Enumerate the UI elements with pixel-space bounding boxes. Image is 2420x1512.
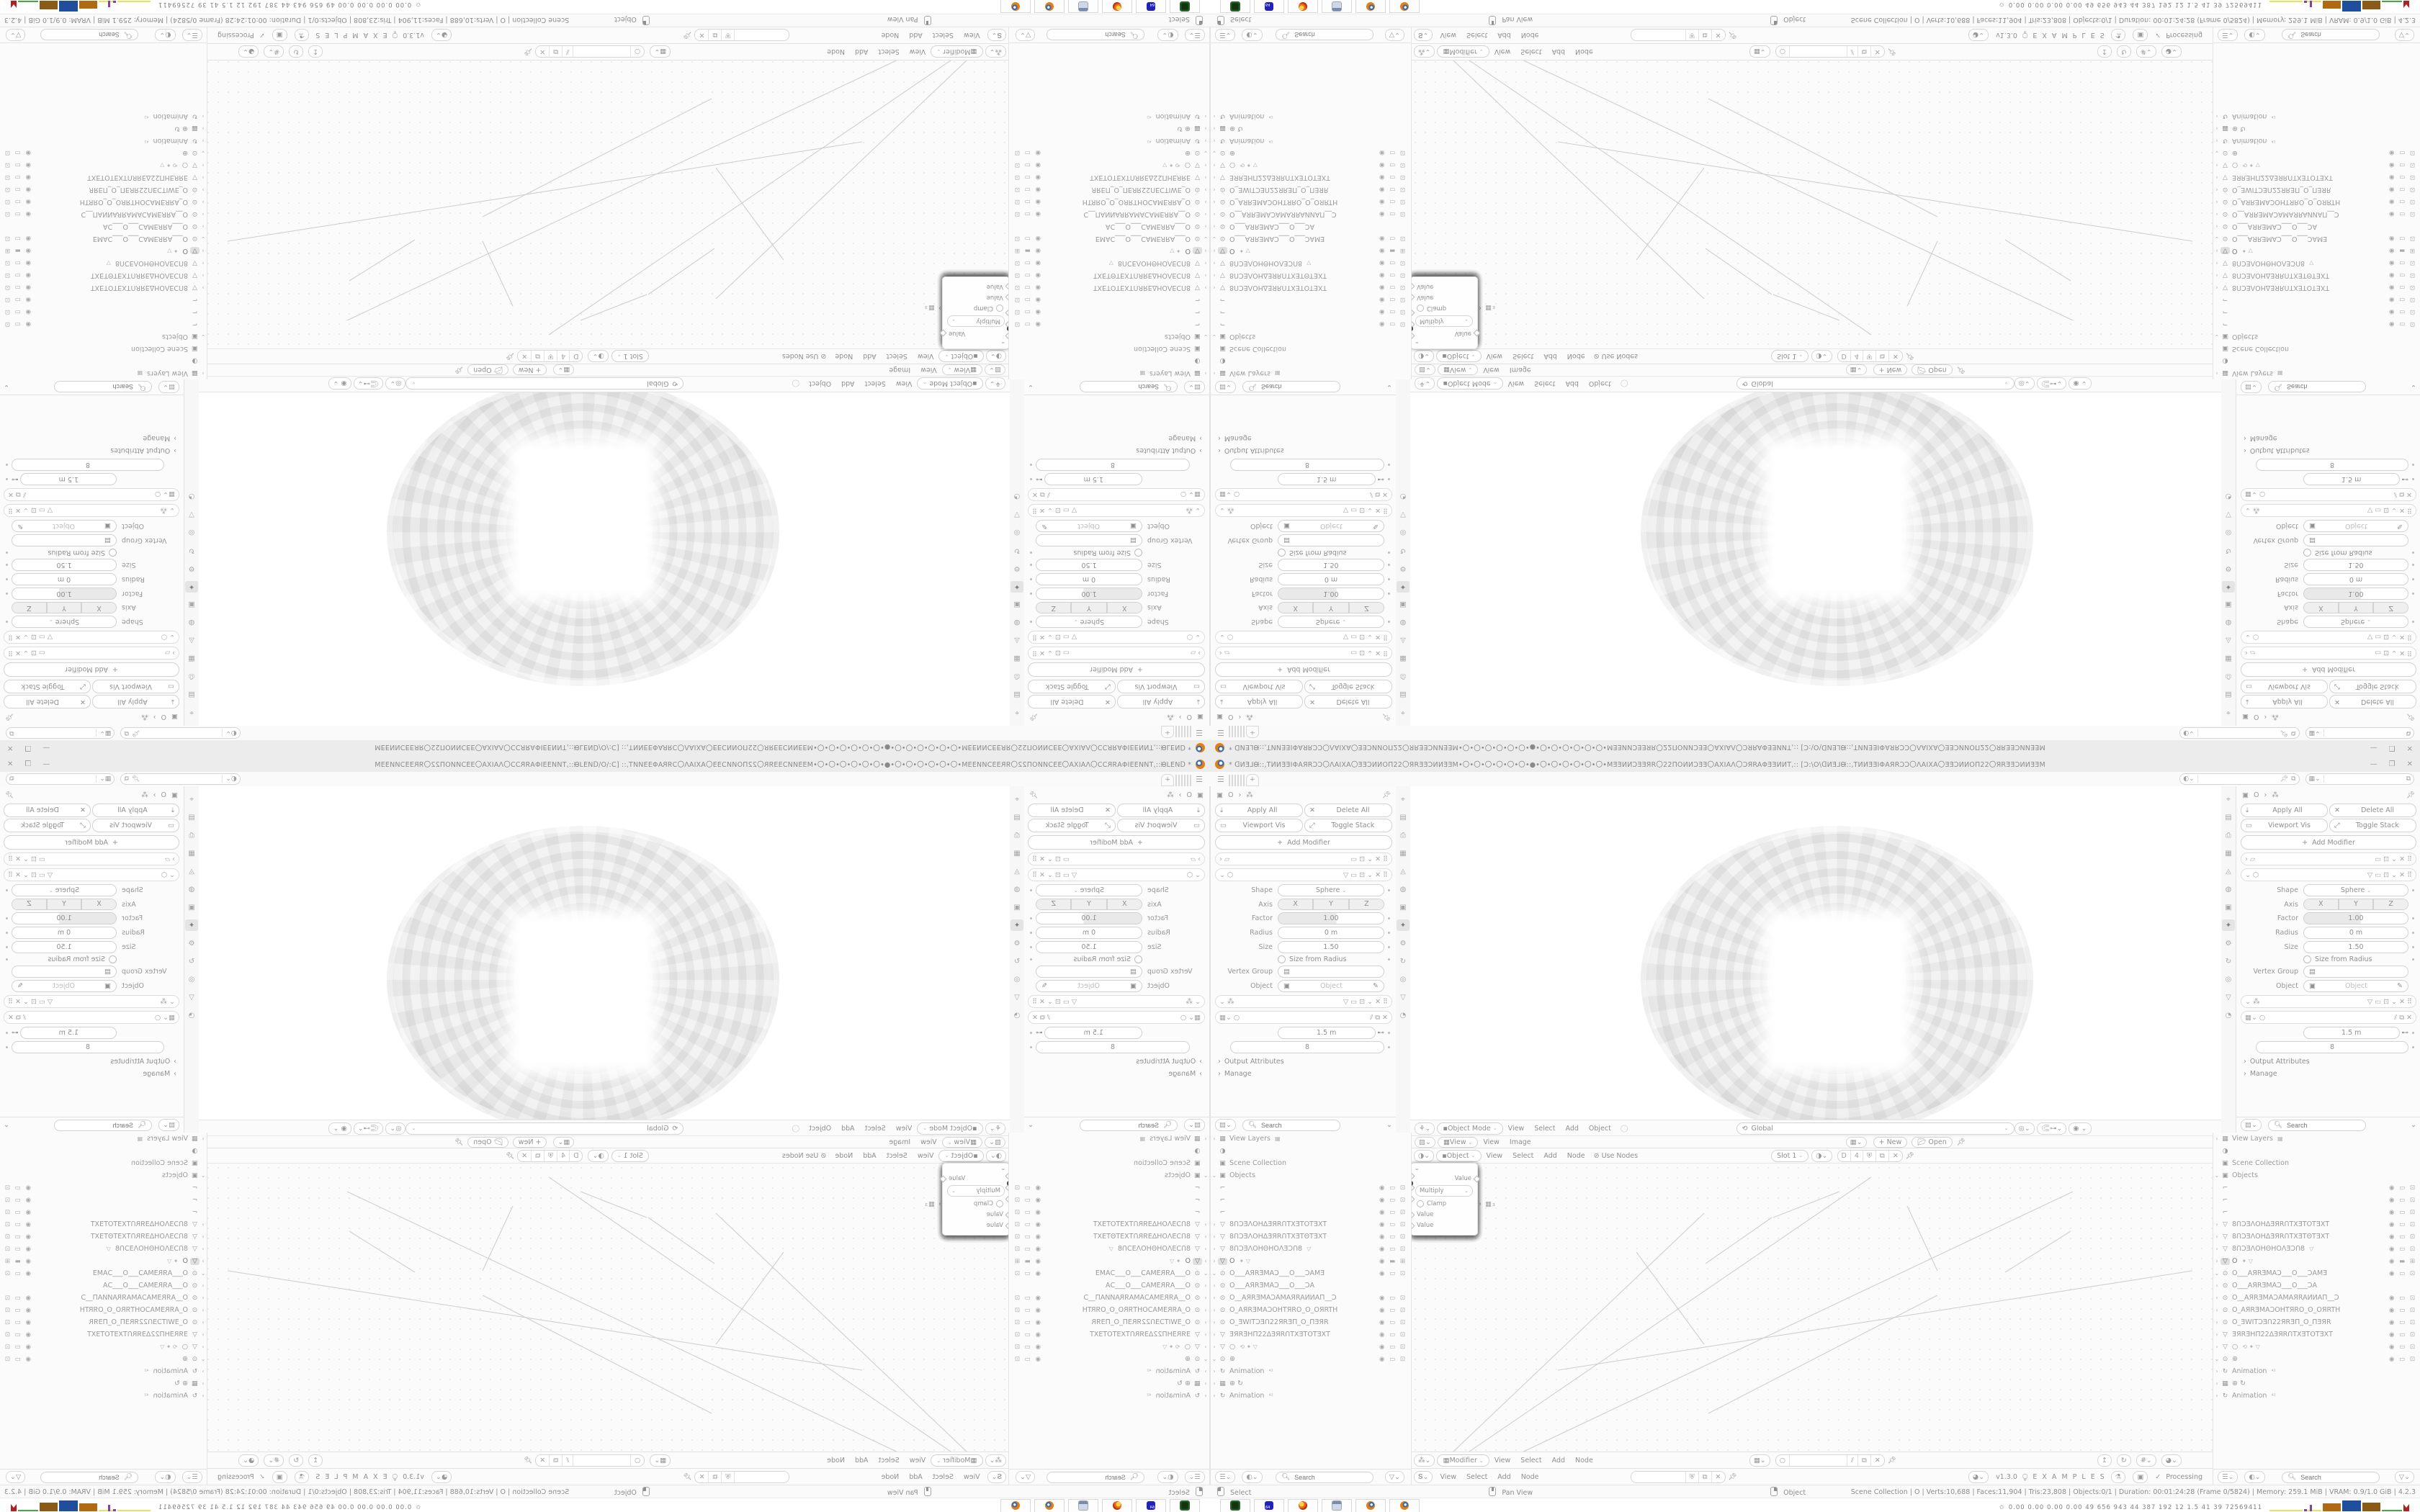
object-name[interactable]: 8ՈƆƎΛΟΗΔƎЯRՈΤΧƎΤΟΤƎΧΤ <box>1229 284 1327 292</box>
object-name[interactable]: O <box>183 247 188 255</box>
visibility-icons[interactable]: ◉ ▭ ⊡ <box>2389 260 2416 267</box>
outliner-row[interactable]: › ⊙ O_ƎWITƆƎՈ22ЯRƎΠ_O_ΠƎЯR ◉ ▭ ⊡ <box>1009 1316 1209 1328</box>
drag-handle[interactable]: ⠿ <box>1032 998 1037 1006</box>
expand-icon[interactable]: ⌄ <box>200 150 207 156</box>
menu-add[interactable]: Add <box>1552 1457 1565 1464</box>
outliner-row[interactable]: ◑ <box>1211 1145 1411 1157</box>
menu-select[interactable]: Select <box>878 48 899 55</box>
apply-all-button[interactable]: ⤓Apply All <box>1215 695 1303 708</box>
expand-icon[interactable]: › <box>1211 1258 1218 1264</box>
outliner-row[interactable]: › ▽ 8ՈƆƎΛΟΗΔƎЯRՈΤΧƎΤΟΤƎΧΤ ◉ ▭ ⊡ <box>0 1218 207 1230</box>
pin-icon[interactable]: 📌︎ <box>1029 791 1038 799</box>
expand-icon[interactable]: › <box>200 1258 207 1264</box>
node-tree-selector[interactable]: ▦⌄○ ⫽ ⧉✕ <box>1215 488 1392 501</box>
expand-icon[interactable]: ⌄ <box>1202 235 1209 242</box>
toggle-stack-button[interactable]: ⤢Toggle Stack <box>2329 680 2416 693</box>
expand-icon[interactable]: › <box>1202 211 1209 217</box>
drag-handle[interactable]: ⠿ <box>8 871 13 879</box>
screen-icon[interactable]: ▭ <box>2375 855 2381 863</box>
visibility-icons[interactable]: ◉ ▭ ⊡ <box>1013 1246 1041 1253</box>
viewport-vis-button[interactable]: ▭Viewport Vis <box>2241 819 2328 832</box>
material-name[interactable]: Ⅾ <box>570 1151 582 1161</box>
delete-all-button[interactable]: ✕Delete All <box>1304 695 1392 708</box>
fake-user-icon[interactable]: ⫽ <box>563 46 573 57</box>
axis-toggle[interactable]: XYZ <box>1278 899 1384 910</box>
workspace-tab[interactable] <box>1232 726 1233 737</box>
filter-object-button[interactable]: ◐⌄ <box>155 1471 175 1483</box>
size-from-radius-checkbox[interactable] <box>1278 549 1286 557</box>
taskbar-app-button[interactable] <box>1000 0 1031 14</box>
outliner-row[interactable]: › ⊙ O___AЯRƎMAƆ___O___ƆA <box>2213 1279 2420 1292</box>
outliner-row[interactable]: › ⊙ O_ƎWITƆƎՈ22ЯRƎΠ_O_ΠƎЯR ◉ ▭ ⊡ <box>1211 1316 1411 1328</box>
image-browse-button[interactable]: ▦⌄ <box>553 1137 574 1148</box>
menu-add[interactable]: Add <box>1543 353 1556 361</box>
object-name[interactable]: Animation <box>153 1367 188 1375</box>
overlay-button[interactable]: ◕⌄ <box>238 45 259 58</box>
outliner-row[interactable]: ◑ <box>1009 355 1209 367</box>
filter-icon[interactable]: ▽ <box>1343 998 1348 1006</box>
editor-type-button[interactable]: ⁂⌄ <box>985 1454 1006 1467</box>
object-name[interactable]: 8ՈƆƎΛΟΗΘΗΟΛƎƆՈ8 <box>1229 1245 1302 1253</box>
properties-tab[interactable]: ◬ <box>1397 635 1410 647</box>
expand-icon[interactable]: › <box>1202 1282 1209 1289</box>
expand-icon[interactable]: ⌄ <box>1202 150 1209 156</box>
editor-type-button[interactable]: ▤⌄ <box>1215 1119 1236 1131</box>
editor-type-button[interactable]: ⁂⌄ <box>1414 45 1435 58</box>
object-name[interactable]: ○ <box>1229 1343 1235 1351</box>
properties-search[interactable]: 🔍︎ <box>54 382 152 393</box>
outliner-row[interactable]: › ↻ Animation ⁴² <box>1211 1390 1411 1402</box>
material-id-field[interactable]: Ⅾ 4 ⛨ ⧉ ✕ <box>517 351 583 363</box>
taskbar-app-button[interactable] <box>1102 0 1132 14</box>
image-view-dropdown[interactable]: ▦ View⌄ <box>1438 364 1478 375</box>
menu-image[interactable]: Image <box>889 366 910 374</box>
visibility-icons[interactable]: ◉ ▭ ⊡ <box>4 321 31 328</box>
editor-type-button[interactable]: ⚘⌄ <box>985 378 1005 390</box>
material-name[interactable]: Ⅾ <box>1838 1151 1850 1161</box>
editor-type-button[interactable]: ▤⌄ <box>158 381 179 393</box>
manage-section[interactable]: › Manage <box>1218 1070 1389 1078</box>
outliner-row[interactable]: ⌐ ◉ ▭ ⊡ <box>0 306 207 318</box>
outliner-row[interactable]: › ⊙ O_AЯRƎMAƆOHTЯRO_O_OЯRTH ◉ ▭ ⊡ <box>0 196 207 208</box>
object-name[interactable]: View Layers <box>147 369 188 377</box>
object-field[interactable]: ▣ Object✎ <box>1278 980 1384 992</box>
drag-handle[interactable]: ⠿ <box>8 634 13 642</box>
expand-icon[interactable]: › <box>2213 272 2220 279</box>
properties-tab[interactable]: ⌖ <box>1397 707 1410 719</box>
outliner-row[interactable]: › ▦ View Layers ▦ <box>1009 367 1209 379</box>
properties-tab[interactable]: ✦ <box>185 919 198 931</box>
object-name[interactable]: O_ƎWITƆƎՈ22ЯRƎΠ_O_ΠƎЯR <box>1091 186 1191 194</box>
editor-type-button[interactable]: 𝐒⌄ <box>1414 29 1433 41</box>
modifier-slot-cast[interactable]: ⌄⬡ ▽ ▭⊡ ⌄✕⠿ <box>4 631 179 644</box>
remove-icon[interactable]: ✕ <box>1039 855 1045 863</box>
visibility-icons[interactable]: ◉ ▭ ⊡ <box>1379 321 1407 328</box>
expand-icon[interactable]: › <box>200 1319 207 1326</box>
menu-node[interactable]: Node <box>1575 1457 1593 1464</box>
modifier-slot-collapsed[interactable]: ›▱ ▭⊡ ⌄✕⠿ <box>1215 647 1392 660</box>
editor-type-button[interactable]: ◑⌄ <box>986 351 1006 363</box>
vertex-group-field[interactable]: ▤ <box>2303 534 2408 546</box>
object-name[interactable]: O__AЯRƎMAƆAMAЯRAͶͶAΠ__Ɔ <box>2232 210 2339 218</box>
gn-scale-field[interactable]: 1.5 m <box>2303 1027 2400 1039</box>
visibility-icons[interactable]: ◉ ▭ ⊡ <box>2389 1319 2416 1326</box>
outliner-row[interactable]: › ⊙ O__AЯRƎMAƆAMAЯRAͶͶAΠ__Ɔ ◉ ▭ ⊡ <box>1009 208 1209 220</box>
outliner-row[interactable]: › ⊙ O__AЯRƎMAƆAMAЯRAͶͶAΠ__Ɔ ◉ ▭ ⊡ <box>1009 1292 1209 1304</box>
screen-icon[interactable]: ▭ <box>2375 998 2381 1006</box>
outliner-row[interactable]: ▣ Scene Collection <box>0 343 207 355</box>
expand-icon[interactable]: › <box>1211 125 1218 132</box>
options-chevron-icon[interactable]: ⌄ <box>4 383 9 391</box>
orientation-dropdown[interactable]: ⟲ Global⌄ <box>1736 378 2015 390</box>
workspace-tab[interactable] <box>1237 726 1239 737</box>
object-field[interactable]: ▣ Object✎ <box>1278 520 1384 532</box>
object-name[interactable]: 8ՈƆƎΛΟΗΘΗΟΛƎƆՈ8 <box>1118 259 1191 267</box>
menu-node[interactable]: Node <box>1575 48 1593 55</box>
filter-icon[interactable]: ▽ <box>2367 871 2372 879</box>
menu-view[interactable]: View <box>920 366 937 374</box>
outliner-row[interactable]: ⌐ ◉ ▭ ⊡ <box>1211 1194 1411 1206</box>
object-name[interactable]: O__AЯRƎMAƆAMAЯRAͶͶAΠ__Ɔ <box>81 1294 188 1302</box>
properties-tab[interactable]: ⚙ <box>1397 937 1410 949</box>
menu-node[interactable]: Node <box>835 1152 853 1160</box>
search-input[interactable] <box>1260 1121 1313 1130</box>
workspace-tab[interactable] <box>1234 775 1236 786</box>
vertex-group-field[interactable]: ▤ <box>12 534 117 546</box>
add-modifier-button[interactable]: + Add Modifier <box>2241 662 2416 677</box>
properties-tab[interactable]: ⎙ <box>1010 671 1023 683</box>
expand-icon[interactable]: ⌄ <box>2213 1172 2220 1179</box>
outliner-row[interactable]: ⌄ ⊙ ⊕ ◉ ▭ ⊡ <box>1211 147 1411 159</box>
expand-icon[interactable]: › <box>1211 370 1218 377</box>
node-tree-selector[interactable]: ▦⌄○ ⫽ ⧉✕ <box>1215 1011 1392 1024</box>
gn-scale-field[interactable]: 1.5 m <box>21 1027 117 1039</box>
menu-select[interactable]: Select <box>1520 48 1541 55</box>
properties-tab[interactable]: ⌖ <box>1397 793 1410 805</box>
pin-icon[interactable]: 📌︎ <box>1888 1457 1896 1464</box>
outliner-row[interactable]: › ▽ 8ՈƆƎΛΟΗΔƎЯRՈΤΧƎΤΘΤƎΧΤ ◉ ▭ ⊡ <box>2213 269 2420 282</box>
properties-tab[interactable]: ▤ <box>185 811 198 823</box>
editor-type-button[interactable]: ⚘⌄ <box>1415 1122 1435 1135</box>
properties-tab[interactable]: ⚙ <box>1397 563 1410 575</box>
size-from-radius-checkbox[interactable] <box>1278 955 1286 963</box>
object-name[interactable]: O_ƎWITƆƎՈ22ЯRƎΠ_O_ΠƎЯR <box>1091 1318 1191 1326</box>
expand-icon[interactable]: › <box>1211 211 1218 217</box>
tree-browse-button[interactable]: ▦⌄ <box>650 1454 671 1467</box>
object-name[interactable]: O__AЯRƎMAƆAMAЯRAͶͶAΠ__Ɔ <box>1083 1294 1191 1302</box>
expand-icon[interactable]: › <box>200 1233 207 1240</box>
outliner-search[interactable]: 🔍︎ <box>40 30 138 41</box>
outliner-row[interactable]: › ▽ 8ՈƆƎΛΟΗΔƎЯRՈΤΧƎΤΟΤƎΧΤ ◉ ▭ ⊡ <box>1211 1218 1411 1230</box>
expand-icon[interactable]: › <box>2213 284 2220 291</box>
object-name[interactable]: Animation <box>1229 137 1264 145</box>
outliner-row[interactable]: ⌐ ◉ ▭ ⊡ <box>1211 1206 1411 1218</box>
outliner-row[interactable]: › ▽ 8ՈƆƎΛΟΗΔƎЯRՈΤΧƎΤΟΤƎΧΤ ◉ ▭ ⊡ <box>0 282 207 294</box>
slot-dropdown[interactable]: Slot 1⌄ <box>1771 1150 1809 1162</box>
scene-selector[interactable]: ◐⌄ 📌︎⧉ <box>120 773 240 785</box>
snap-button[interactable]: #⌄ <box>2136 1454 2156 1467</box>
properties-tab[interactable]: ▽ <box>2222 509 2235 521</box>
visibility-icons[interactable]: ◉ ▭ ⊡ <box>1013 174 1041 181</box>
outliner-search[interactable]: 🔍︎ <box>40 1472 138 1483</box>
object-name[interactable]: Objects <box>1165 1171 1191 1179</box>
properties-tab[interactable]: ◎ <box>1397 973 1410 985</box>
outliner-row[interactable]: › ↻ Animation ⁴² <box>0 1390 207 1402</box>
options-chevron-icon[interactable]: ⌄ <box>2411 383 2416 391</box>
outliner-row[interactable]: › ⊙ O__AЯRƎMAƆAMAЯRAͶͶAΠ__Ɔ ◉ ▭ ⊡ <box>2213 208 2420 220</box>
pin-icon[interactable]: 📌︎ <box>5 791 14 799</box>
camera-icon[interactable]: ⊡ <box>31 634 37 642</box>
object-name[interactable]: 8ՈƆƎΛΟΗΔƎЯRՈΤΧƎΤΟΤƎΧΤ <box>1229 1220 1327 1228</box>
expand-icon[interactable]: ⌄ <box>1202 1356 1209 1362</box>
remove-icon[interactable]: ✕ <box>2399 998 2405 1006</box>
visibility-icons[interactable]: ◉ ▭ ⊡ <box>2389 1295 2416 1302</box>
menu-hamburger-icon[interactable]: ☰ <box>1217 775 1224 784</box>
clamp-checkbox[interactable] <box>996 305 1003 312</box>
modifier-slot-geometry-nodes[interactable]: ⌄⁂ ▽ ▭⊡ ⌄✕⠿ <box>1215 504 1392 517</box>
gn-scale-field[interactable]: 1.5 m <box>1278 473 1376 485</box>
overlay-button[interactable]: ◕⌄ <box>431 1471 452 1483</box>
expand-icon[interactable]: › <box>200 125 207 132</box>
menu-object[interactable]: Object <box>809 1125 831 1133</box>
pin-icon[interactable]: 📌︎ <box>454 366 463 374</box>
outliner-row[interactable]: › ▽ 8ՈƆƎΛΟΗΘΗΟΛƎƆՈ8 ▽ ◉ ▭ ⊡ <box>0 1243 207 1255</box>
outliner-row[interactable]: › ⊙ O_AЯRƎMAƆOHTЯRO_O_OЯRTH ◉ ▭ ⊡ <box>2213 1304 2420 1316</box>
shape-dropdown[interactable]: Sphere⌄ <box>2303 884 2408 896</box>
expand-icon[interactable]: ⌄ <box>1211 1270 1218 1277</box>
minimize-button[interactable]: — <box>2370 760 2378 768</box>
screen-icon[interactable]: ▭ <box>1063 507 1070 515</box>
object-name[interactable]: O___AЯRƎMAƆ___O___ƆAMƎ <box>2232 235 2327 243</box>
tree-browse-button[interactable]: ▦⌄ <box>1749 45 1770 58</box>
eyedropper-icon[interactable]: ✎ <box>2397 522 2403 530</box>
factor-slider[interactable]: 1.00 <box>12 588 117 600</box>
visibility-icons[interactable]: ◉ ▬ ⊞ <box>2389 1258 2416 1265</box>
pin-icon[interactable]: 📌︎ <box>1382 791 1391 799</box>
math-node[interactable]: ⌄ Value Multiply⌄ Clamp Value Value <box>942 1163 1010 1236</box>
visibility-icons[interactable]: ◉ ▬ ⊞ <box>1013 1258 1041 1265</box>
examples-label[interactable]: E X A M P L E S <box>314 31 387 39</box>
camera-icon[interactable]: ⊡ <box>1359 871 1365 879</box>
axis-toggle[interactable]: XYZ <box>1278 602 1384 613</box>
object-name[interactable]: O___AЯRƎMAƆ___O___ƆAMƎ <box>2232 1269 2327 1277</box>
axis-toggle[interactable]: XYZ <box>2303 899 2408 910</box>
shader-editor[interactable]: ◑⌄ ▪ Object⌄ View Select Add Node ⊘ Use … <box>1410 1148 2213 1452</box>
filter-icon[interactable]: ▽ <box>1343 507 1348 515</box>
visibility-icons[interactable]: ◉ ▭ ⊡ <box>4 272 31 279</box>
filter-funnel-button[interactable]: ▽⌄ <box>6 29 25 41</box>
menu-node[interactable]: Node <box>1521 1473 1539 1481</box>
tree-id-field[interactable]: ⛨ ⧉ ✕ <box>1631 1471 1726 1483</box>
viewport-vis-button[interactable]: ▭Viewport Vis <box>1117 819 1205 832</box>
gn-scale-field[interactable]: 1.5 m <box>21 473 117 485</box>
properties-tab[interactable]: ▤ <box>2222 811 2235 823</box>
remove-icon[interactable]: ✕ <box>2399 649 2405 657</box>
camera-icon[interactable]: ⊡ <box>1359 507 1365 515</box>
vertex-group-field[interactable]: ▤ <box>1278 966 1384 978</box>
size-field[interactable]: 1.50 <box>1278 559 1384 571</box>
image-browse-button[interactable]: ▦⌄ <box>553 364 574 375</box>
add-workspace-button[interactable]: + <box>1161 774 1174 786</box>
gn-resolution-field[interactable]: 8 <box>2256 459 2408 471</box>
material-id-field[interactable]: Ⅾ 4 ⛨ ⧉ ✕ <box>1837 351 1903 363</box>
copy-icon[interactable]: ⧉ <box>2291 729 2295 737</box>
properties-tab[interactable]: ↻ <box>185 955 198 967</box>
output-attributes-section[interactable]: › Output Attributes <box>1031 1058 1202 1066</box>
material-browse-button[interactable]: ◑⌄ <box>1811 1150 1832 1162</box>
modifier-slot-collapsed[interactable]: ›▱ ▭⊡ ⌄✕⠿ <box>4 852 179 865</box>
menu-view[interactable]: View <box>1494 1457 1511 1464</box>
material-id-field[interactable]: Ⅾ 4 ⛨ ⧉ ✕ <box>1837 1150 1903 1162</box>
properties-tab[interactable]: ▦ <box>2222 847 2235 859</box>
pin-icon[interactable]: 📌︎ <box>506 1152 514 1160</box>
visibility-icons[interactable]: ◉ ▭ ⊡ <box>2389 235 2416 243</box>
object-name[interactable]: O__AЯRƎMAƆAMAЯRAͶͶAΠ__Ɔ <box>1229 1294 1337 1302</box>
object-name[interactable]: O_ƎWITƆƎՈ22ЯRƎΠ_O_ΠƎЯR <box>2232 186 2331 194</box>
filter-icon[interactable]: ▽ <box>1343 871 1348 879</box>
close-button[interactable]: ✕ <box>2407 744 2413 752</box>
visibility-icons[interactable]: ◉ ▭ ⊡ <box>4 1184 31 1192</box>
properties-tab[interactable]: ◎ <box>2222 527 2235 539</box>
expand-icon[interactable]: › <box>1211 1319 1218 1326</box>
object-name[interactable]: O__AЯRƎMAƆAMAЯRAͶͶAΠ__Ɔ <box>1229 210 1337 218</box>
panel-button[interactable]: ▣ <box>272 29 287 41</box>
camera-icon[interactable]: ⊡ <box>2383 507 2389 515</box>
unlink-icon[interactable]: ✕ <box>8 491 14 499</box>
manage-section[interactable]: › Manage <box>1031 1070 1202 1078</box>
copy-icon[interactable]: ⧉ <box>9 775 14 783</box>
editor-type-button[interactable]: ▤⌄ <box>1184 1119 1205 1131</box>
image-open-button[interactable]: 📂︎ Open <box>467 364 508 375</box>
outliner-row[interactable]: › ↻ Animation ⁴² <box>1211 135 1411 147</box>
camera-icon[interactable]: ⊡ <box>1359 634 1365 642</box>
outliner-row[interactable]: › ▽ ƎЯRƎΗΠ22ΔƎЯRՈΤΧƎΤΟΤƎΧΤ ◉ ▭ ⊡ <box>1009 171 1209 184</box>
modifier-slot-cast[interactable]: ⌄⬡ ▽ ▭⊡ ⌄✕⠿ <box>1215 868 1392 881</box>
properties-tab[interactable]: ◬ <box>185 865 198 877</box>
expand-icon[interactable]: › <box>200 138 207 144</box>
image-open-button[interactable]: 📂︎ Open <box>1912 364 1952 375</box>
search-input[interactable] <box>1293 31 1346 40</box>
shader-mode-dropdown[interactable]: ▪ Object⌄ <box>1436 1150 1481 1162</box>
axis-toggle[interactable]: XYZ <box>1036 602 1142 613</box>
outliner-row[interactable]: › ↻ Animation ⁴² <box>0 135 207 147</box>
object-name[interactable]: O___AЯRƎMAƆ___O___ƆA <box>2232 1282 2317 1290</box>
unlink-icon[interactable]: ✕ <box>696 1472 709 1482</box>
workspace-tab[interactable] <box>1187 726 1188 737</box>
menu-view[interactable]: View <box>918 353 934 361</box>
eyedropper-icon[interactable]: ✎ <box>2397 982 2403 990</box>
editor-type-button[interactable]: ▨⌄ <box>985 1137 1005 1148</box>
visibility-icons[interactable]: ◉ ▭ ⊡ <box>2389 1246 2416 1253</box>
search-input[interactable] <box>1293 1473 1346 1482</box>
outliner-row[interactable]: › ⊙ O___AЯRƎMAƆ___O___ƆA <box>2213 220 2420 233</box>
node-canvas[interactable]: ▣ O › ⁂ › ▦ O › ▦₃ ⌄ Value Subtract⌄ Cla… <box>1410 60 2213 349</box>
expand-icon[interactable]: › <box>1211 1295 1218 1301</box>
menu-select[interactable]: Select <box>1534 380 1555 388</box>
editor-type-button[interactable]: ▤⌄ <box>1215 381 1236 393</box>
modifier-slot-collapsed[interactable]: ›▱ ▭⊡ ⌄✕⠿ <box>1028 647 1205 660</box>
expand-icon[interactable]: › <box>200 1368 207 1374</box>
outliner-row[interactable]: ⌐ ◉ ▭ ⊡ <box>0 1182 207 1194</box>
display-mode-button[interactable]: ☰⌄ <box>1215 29 1235 41</box>
object-name[interactable]: O_AЯRƎMAƆOHTЯRO_O_OЯRTH <box>1229 1306 1337 1314</box>
outliner-row[interactable]: ◑ <box>0 355 207 367</box>
camera-icon[interactable]: ⊡ <box>2383 998 2389 1006</box>
menu-select[interactable]: Select <box>1466 31 1487 39</box>
operation-dropdown[interactable]: Multiply⌄ <box>1415 315 1473 327</box>
drag-handle[interactable]: ⠿ <box>1383 649 1388 657</box>
outliner-row[interactable]: › ▽ ƎЯRƎΗΠ22ΔƎЯRՈΤΧƎΤΟΤƎΧΤ ◉ ▭ ⊡ <box>1009 1328 1209 1341</box>
visibility-icons[interactable]: ◉ ▭ ⊡ <box>1379 186 1407 194</box>
properties-tab[interactable]: ↻ <box>2222 955 2235 967</box>
object-name[interactable]: View Layers <box>1149 369 1191 377</box>
outliner-row[interactable]: › ⊙ O_AЯRƎMAƆOHTЯRO_O_OЯRTH ◉ ▭ ⊡ <box>1211 196 1411 208</box>
expand-icon[interactable]: › <box>1202 1246 1209 1252</box>
expand-icon[interactable]: ⌄ <box>1211 150 1218 156</box>
object-name[interactable]: ⊕ ↻ <box>2232 125 2246 132</box>
menu-select[interactable]: Select <box>1512 1152 1533 1160</box>
expand-icon[interactable]: › <box>2213 1282 2220 1289</box>
expand-icon[interactable]: › <box>1202 125 1209 132</box>
outliner-row[interactable]: › ▦ ⊕ ↻ <box>2213 122 2420 135</box>
visibility-icons[interactable]: ◉ ▭ ⊡ <box>1013 186 1041 194</box>
settings-button[interactable]: ⚗ <box>2111 1471 2126 1483</box>
scene-selector[interactable]: ◐⌄ 📌︎⧉ <box>2179 773 2299 785</box>
menu-view[interactable]: View <box>1508 1125 1525 1133</box>
properties-tab[interactable]: ◍ <box>2222 617 2235 629</box>
properties-tab[interactable]: ◍ <box>1397 617 1410 629</box>
screen-icon[interactable]: ▭ <box>1350 649 1357 657</box>
properties-tab[interactable]: ◬ <box>1010 865 1023 877</box>
filter-object-button[interactable]: ◐⌄ <box>2244 29 2264 41</box>
object-name[interactable]: Animation <box>2232 137 2267 145</box>
examples-label[interactable]: E X A M P L E S <box>314 1473 387 1481</box>
expand-icon[interactable]: › <box>2213 1331 2220 1338</box>
outliner-row[interactable]: ⌐ ◉ ▭ ⊡ <box>0 318 207 330</box>
delete-all-button[interactable]: ✕Delete All <box>1028 804 1116 817</box>
unlink-icon[interactable]: ✕ <box>8 1014 14 1022</box>
expand-icon[interactable]: › <box>2213 1368 2220 1374</box>
scene-selector[interactable]: ◐⌄ 📌︎⧉ <box>2179 727 2299 739</box>
overlay-button[interactable]: ◕⌄ <box>238 1454 259 1467</box>
properties-tab[interactable]: ▤ <box>1010 811 1023 823</box>
expand-icon[interactable]: › <box>1202 370 1209 377</box>
expand-icon[interactable]: ⌄ <box>200 235 207 242</box>
viewport-vis-button[interactable]: ▭Viewport Vis <box>1117 680 1205 693</box>
copy-icon[interactable]: ⧉ <box>16 1014 21 1022</box>
menu-add[interactable]: Add <box>909 31 922 39</box>
remove-icon[interactable]: ✕ <box>1375 871 1381 879</box>
display-mode-button[interactable]: ☰⌄ <box>2218 29 2238 41</box>
remove-icon[interactable]: ✕ <box>15 507 21 515</box>
gn-resolution-field[interactable]: 8 <box>1036 459 1190 471</box>
properties-tab[interactable]: ▽ <box>1397 509 1410 521</box>
minimize-button[interactable]: — <box>2370 744 2378 752</box>
properties-tab[interactable]: ⎙ <box>185 671 198 683</box>
visibility-icons[interactable]: ◉ ▭ ⊡ <box>2389 1307 2416 1314</box>
camera-icon[interactable]: ⊡ <box>2383 649 2389 657</box>
outliner-row[interactable]: › ↻ Animation ⁴² <box>2213 1365 2420 1377</box>
filter-object-button[interactable]: ◐⌄ <box>1242 1471 1262 1483</box>
outliner-row[interactable]: › ⊙ O__AЯRƎMAƆAMAЯRAͶͶAΠ__Ɔ ◉ ▭ ⊡ <box>0 208 207 220</box>
manage-section[interactable]: › Manage <box>2244 1070 2414 1078</box>
object-name[interactable]: 8ՈƆƎΛΟΗΔƎЯRՈΤΧƎΤΟΤƎΧΤ <box>1093 284 1191 292</box>
workspace-tab[interactable] <box>1229 726 1230 737</box>
use-nodes-checkbox[interactable]: ⊘ Use Nodes <box>782 1152 827 1160</box>
display-mode-button[interactable]: ☰⌄ <box>1185 1471 1205 1483</box>
shield-icon[interactable]: ⛨ <box>722 1472 735 1482</box>
outliner-row[interactable]: ◑ <box>2213 1145 2420 1157</box>
